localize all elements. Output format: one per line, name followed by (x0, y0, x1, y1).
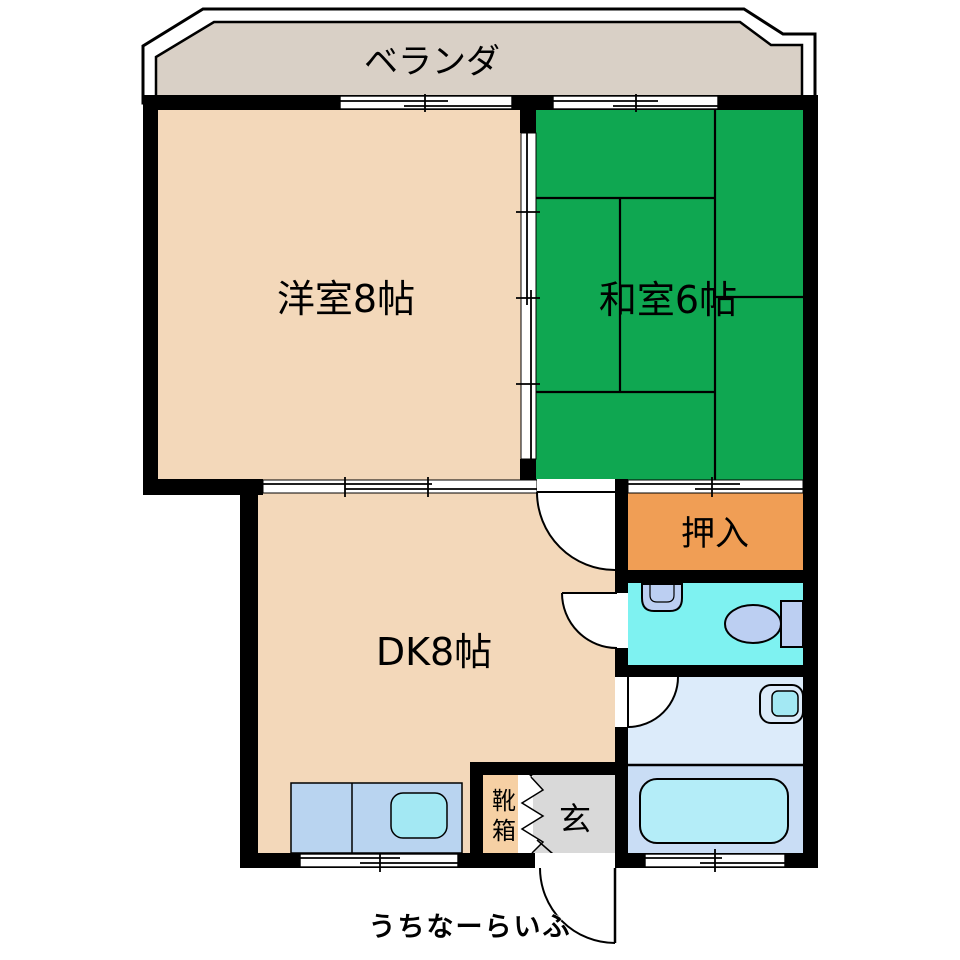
toilet-basin (642, 584, 682, 611)
wall-shoebox-left (470, 762, 483, 868)
veranda-label: ベランダ (364, 42, 500, 82)
closet-label: 押入 (681, 514, 749, 554)
western-room-label: 洋室8帖 (277, 277, 415, 321)
folding-door-channel (518, 775, 533, 853)
toilet-bowl (725, 605, 781, 643)
window-veranda-japanese (553, 94, 718, 112)
wall-closet-bottom (615, 570, 805, 583)
wall-toilet-bottom (615, 665, 805, 677)
washroom-sink-bowl (772, 691, 798, 716)
bathtub (640, 779, 788, 843)
window-veranda-west (340, 94, 512, 112)
watermark: うちなーらいふ (369, 912, 572, 943)
wall-dk-left (240, 479, 258, 868)
floor-plan-image: ベランダ 洋室8帖 和室6帖 押入 DK8帖 靴 箱 玄 うちなーらいふ (0, 0, 960, 960)
toilet-tank (781, 601, 803, 647)
floor-plan-page: ベランダ 洋室8帖 和室6帖 押入 DK8帖 靴 箱 玄 うちなーらいふ (0, 0, 960, 960)
japanese-room-label: 和室6帖 (599, 278, 737, 322)
kitchen-sink (391, 793, 447, 838)
wall-fusuma-stub-bottom (520, 459, 536, 480)
wall-fusuma-stub-top (520, 95, 536, 133)
dining-kitchen-label: DK8帖 (376, 630, 492, 674)
wall-left (143, 95, 158, 495)
entrance-label: 玄 (559, 800, 591, 838)
shoe-box-label-top: 靴 (492, 787, 516, 815)
shoe-box-label-bottom: 箱 (492, 817, 516, 845)
wall-right (803, 95, 818, 868)
